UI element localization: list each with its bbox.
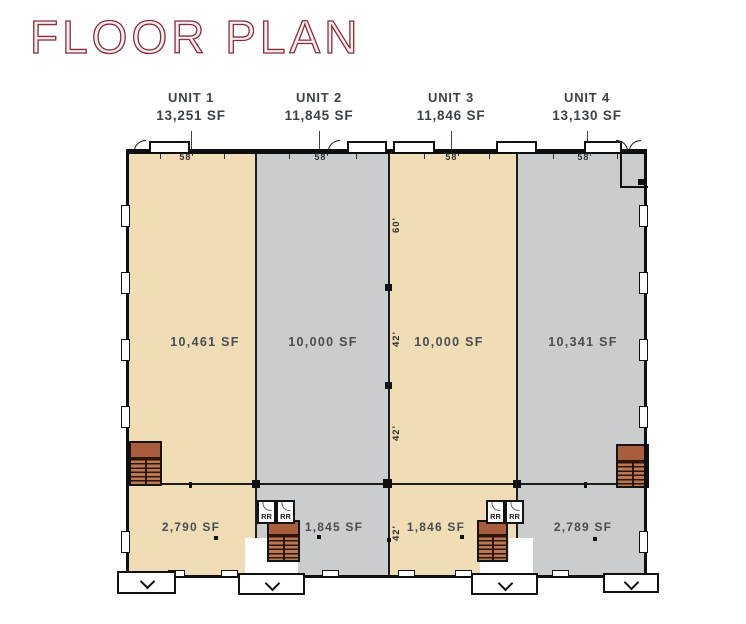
- unit-4-name: UNIT 4: [522, 90, 652, 105]
- dim-tick: [489, 154, 490, 159]
- pilaster: [639, 205, 648, 227]
- dim-tick: [224, 154, 225, 159]
- unit-2-name: UNIT 2: [254, 90, 384, 105]
- unit-3-header: UNIT 3 11,846 SF: [386, 90, 516, 123]
- storefront-mullion: [552, 570, 569, 576]
- unit-2-leader-tick: [319, 131, 320, 150]
- dim-tick: [424, 154, 425, 159]
- storefront-mullion: [455, 570, 472, 576]
- dim-tick: [553, 154, 554, 159]
- unit-1-width-dim: 58': [169, 152, 205, 162]
- canopy: [393, 141, 435, 152]
- unit-2-header: UNIT 2 11,845 SF: [254, 90, 384, 123]
- canopy: [496, 141, 537, 152]
- page-title: FLOOR PLAN: [30, 10, 361, 64]
- unit-2-width-dim: 58': [304, 152, 340, 162]
- dim-tick: [289, 154, 290, 159]
- unit-2-main-sf: 10,000 SF: [263, 335, 383, 349]
- dim-tick: [617, 154, 618, 159]
- door-arc: [616, 140, 628, 151]
- unit-1-name: UNIT 1: [126, 90, 256, 105]
- unit-4-main-sf: 10,341 SF: [523, 335, 643, 349]
- pilaster: [639, 272, 648, 294]
- unit-1-lower-sf: 2,790 SF: [141, 520, 241, 534]
- unit-3-leader-tick: [451, 131, 452, 150]
- unit-3-name: UNIT 3: [386, 90, 516, 105]
- unit-3-lower-sf: 1,846 SF: [386, 520, 486, 534]
- unit-3-main-sf: 10,000 SF: [389, 335, 509, 349]
- unit-1-leader-tick: [191, 131, 192, 150]
- unit-4-lower-sf: 2,789 SF: [533, 520, 633, 534]
- unit-4-total-sf: 13,130 SF: [522, 108, 652, 123]
- depth-dim-42b: 42': [391, 425, 402, 441]
- pilaster: [639, 406, 648, 428]
- unit-1-total-sf: 13,251 SF: [126, 108, 256, 123]
- unit-4-header: UNIT 4 13,130 SF: [522, 90, 652, 123]
- building-outline: [126, 150, 647, 578]
- storefront-mullion: [398, 570, 415, 576]
- canopy: [347, 141, 387, 152]
- unit-1-main-sf: 10,461 SF: [145, 335, 265, 349]
- unit-2-total-sf: 11,845 SF: [254, 108, 384, 123]
- storefront-mullion: [322, 570, 339, 576]
- pilaster: [121, 531, 130, 553]
- unit-2-lower-sf: 1,845 SF: [284, 520, 384, 534]
- door-arc: [328, 140, 340, 151]
- pilaster: [121, 272, 130, 294]
- pilaster: [121, 406, 130, 428]
- dim-tick: [160, 154, 161, 159]
- floor-plan-page: FLOOR PLAN UNIT 1 13,251 SF UNIT 2 11,84…: [0, 0, 746, 624]
- depth-dim-60: 60': [391, 217, 402, 233]
- unit-1-header: UNIT 1 13,251 SF: [126, 90, 256, 123]
- unit-4-width-dim: 58': [567, 152, 603, 162]
- unit-3-width-dim: 58': [435, 152, 471, 162]
- unit-3-total-sf: 11,846 SF: [386, 108, 516, 123]
- pilaster: [121, 339, 130, 361]
- pilaster: [639, 531, 648, 553]
- door-arc: [134, 140, 146, 151]
- door-arc: [629, 140, 641, 151]
- storefront-mullion: [221, 570, 238, 576]
- canopy: [149, 141, 190, 152]
- pilaster: [121, 205, 130, 227]
- dim-tick: [356, 154, 357, 159]
